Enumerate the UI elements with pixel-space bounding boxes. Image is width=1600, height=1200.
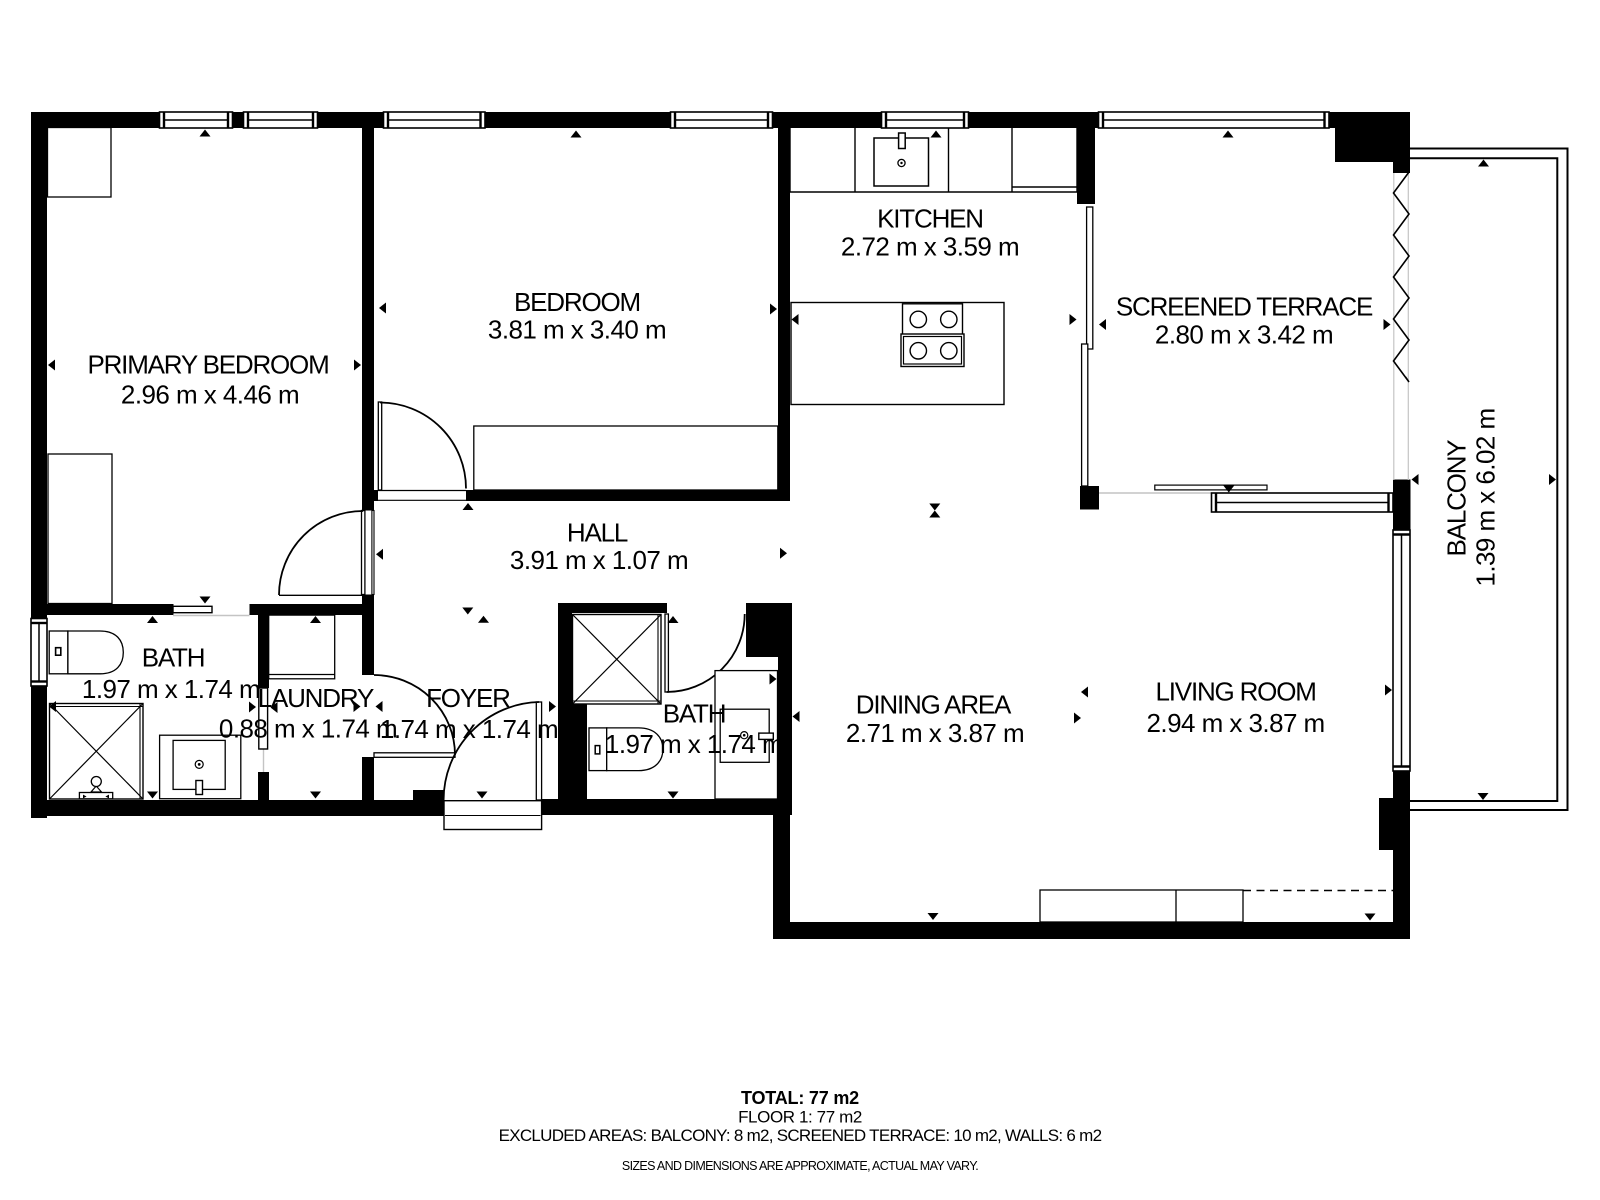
svg-text:BALCONY: BALCONY (1441, 440, 1471, 557)
svg-text:SCREENED TERRACE: SCREENED TERRACE (1116, 292, 1373, 322)
svg-text:LIVING ROOM: LIVING ROOM (1156, 677, 1316, 707)
svg-text:3.81 m x 3.40 m: 3.81 m x 3.40 m (488, 315, 666, 345)
svg-text:1.97 m x 1.74 m: 1.97 m x 1.74 m (82, 674, 260, 704)
svg-text:2.80 m x 3.42 m: 2.80 m x 3.42 m (1155, 320, 1333, 350)
svg-text:LAUNDRY: LAUNDRY (258, 683, 374, 713)
svg-text:2.72 m x 3.59 m: 2.72 m x 3.59 m (841, 231, 1019, 261)
svg-text:EXCLUDED AREAS: BALCONY: 8 m2,: EXCLUDED AREAS: BALCONY: 8 m2, SCREENED … (499, 1126, 1102, 1145)
svg-text:BATH: BATH (142, 643, 205, 673)
svg-text:HALL: HALL (567, 518, 628, 548)
svg-text:1.74 m x 1.74 m: 1.74 m x 1.74 m (380, 714, 558, 744)
svg-text:PRIMARY BEDROOM: PRIMARY BEDROOM (87, 349, 328, 379)
svg-text:2.96 m x 4.46 m: 2.96 m x 4.46 m (121, 379, 299, 409)
svg-text:3.91 m x 1.07 m: 3.91 m x 1.07 m (510, 545, 688, 575)
svg-text:BEDROOM: BEDROOM (514, 287, 640, 317)
svg-text:1.39 m x 6.02 m: 1.39 m x 6.02 m (1470, 408, 1500, 586)
svg-text:0.88 m x 1.74 m: 0.88 m x 1.74 m (219, 714, 397, 744)
svg-text:TOTAL: 77 m2: TOTAL: 77 m2 (741, 1088, 859, 1108)
svg-text:BATH: BATH (663, 699, 726, 729)
svg-text:2.71 m x 3.87 m: 2.71 m x 3.87 m (846, 718, 1024, 748)
svg-text:KITCHEN: KITCHEN (877, 203, 983, 233)
svg-text:2.94 m x 3.87 m: 2.94 m x 3.87 m (1147, 708, 1325, 738)
svg-text:SIZES AND DIMENSIONS ARE APPRO: SIZES AND DIMENSIONS ARE APPROXIMATE, AC… (622, 1159, 978, 1173)
svg-text:DINING AREA: DINING AREA (856, 690, 1012, 720)
svg-text:FLOOR 1: 77 m2: FLOOR 1: 77 m2 (738, 1108, 862, 1127)
svg-text:1.97 m x 1.74 m: 1.97 m x 1.74 m (605, 729, 783, 759)
svg-text:FOYER: FOYER (426, 683, 510, 713)
